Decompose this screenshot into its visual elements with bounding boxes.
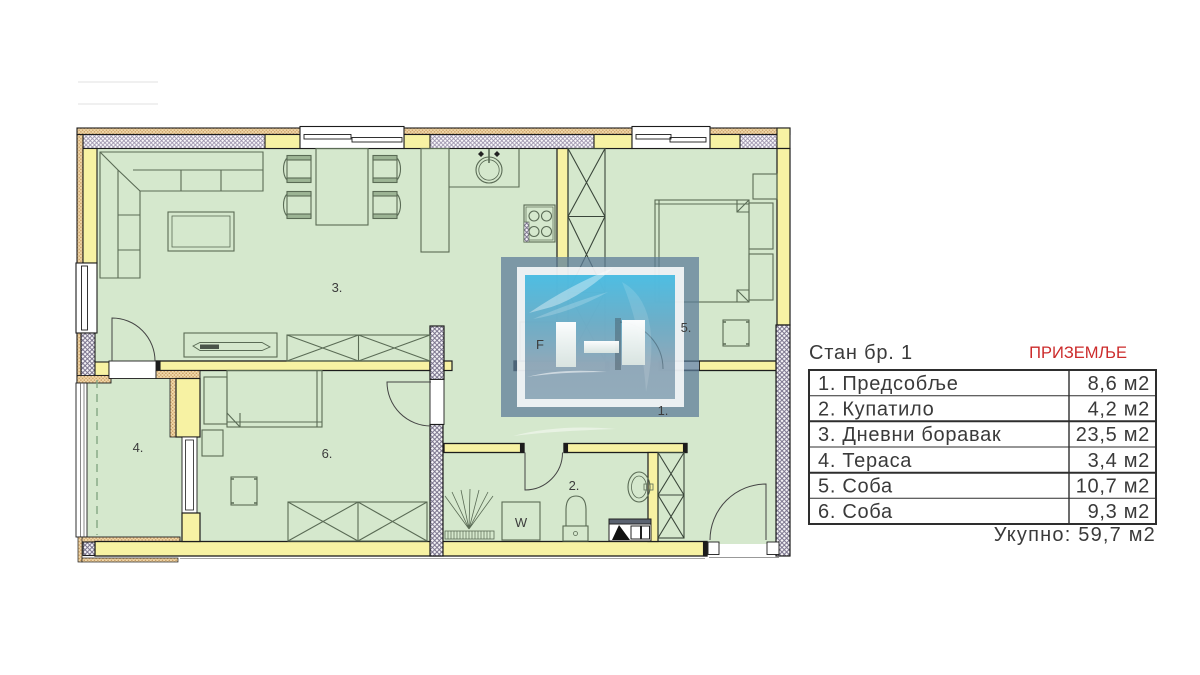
- svg-text:6. Соба: 6. Соба: [818, 501, 893, 523]
- svg-text:2. Купатило: 2. Купатило: [818, 399, 934, 421]
- svg-text:3,4 м2: 3,4 м2: [1088, 450, 1150, 472]
- svg-text:ПРИЗЕМЉЕ: ПРИЗЕМЉЕ: [1029, 344, 1127, 362]
- svg-text:6.: 6.: [322, 446, 333, 461]
- svg-text:1. Предсобље: 1. Предсобље: [818, 373, 959, 395]
- svg-text:3.: 3.: [332, 280, 343, 295]
- svg-text:1.: 1.: [658, 403, 669, 418]
- svg-text:4.: 4.: [133, 440, 144, 455]
- svg-text:Стан бр. 1: Стан бр. 1: [809, 342, 913, 364]
- svg-text:F: F: [536, 337, 544, 352]
- svg-text:9,3 м2: 9,3 м2: [1088, 501, 1150, 523]
- svg-text:2.: 2.: [569, 478, 580, 493]
- svg-text:W: W: [515, 515, 528, 530]
- svg-text:3. Дневни боравак: 3. Дневни боравак: [818, 424, 1001, 446]
- svg-text:5. Соба: 5. Соба: [818, 476, 893, 498]
- svg-text:Укупно: 59,7 м2: Укупно: 59,7 м2: [994, 524, 1156, 546]
- svg-text:23,5 м2: 23,5 м2: [1076, 424, 1150, 446]
- svg-text:4. Тераса: 4. Тераса: [818, 450, 912, 472]
- svg-text:10,7 м2: 10,7 м2: [1076, 476, 1150, 498]
- svg-text:4,2 м2: 4,2 м2: [1088, 399, 1150, 421]
- svg-text:5.: 5.: [681, 320, 692, 335]
- svg-text:8,6 м2: 8,6 м2: [1088, 373, 1150, 395]
